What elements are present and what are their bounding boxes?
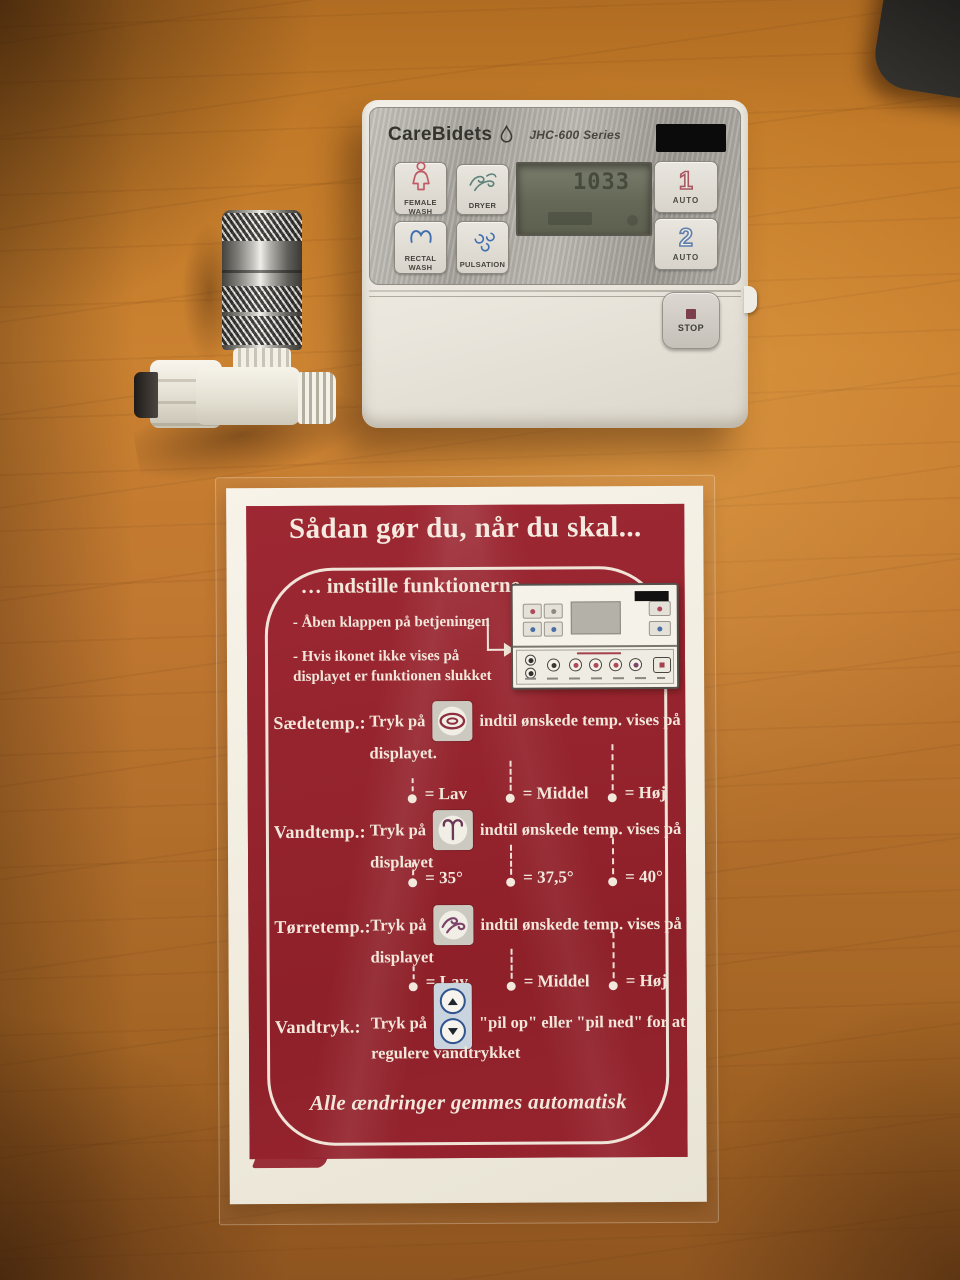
ir-window: [656, 124, 726, 152]
tee-end-cap: [134, 372, 158, 418]
card-paper: Sådan gør du, når du skal... … indstille…: [226, 486, 707, 1204]
mini-button: [544, 603, 563, 618]
mini-display: [571, 601, 621, 634]
row-label: Vandtryk.:: [275, 1017, 361, 1038]
levels-water-temp: = 35° = 37,5° = 40°: [274, 828, 680, 888]
rectal-wash-button[interactable]: RECTAL WASH: [394, 221, 447, 274]
arrow-line-vertical: [487, 618, 489, 651]
knurled-band: [222, 213, 302, 241]
card-subtitle: … indstille funktionerne: [301, 573, 521, 599]
arrow-up-icon: [440, 988, 466, 1014]
remote-side-tab: [744, 286, 757, 313]
coupling-groove: [222, 270, 302, 273]
seat-temperature-icon: [432, 701, 472, 741]
mini-round-button: [609, 658, 622, 671]
button-label: FEMALE WASH: [395, 198, 446, 216]
arrow-down-icon: [440, 1018, 466, 1044]
tee-threaded-outlet: [298, 372, 336, 424]
water-drop-icon: [498, 124, 515, 146]
remote-face-plate: CareBidets JHC-600 Series FEMALE WASH: [369, 107, 741, 285]
lcd-ghost-dot: [627, 215, 638, 226]
mini-button: [649, 621, 671, 636]
button-label: RECTAL WASH: [395, 254, 446, 272]
metal-quick-connect-coupling: [222, 210, 302, 350]
mini-round-button: [589, 658, 602, 671]
row-text-line2: regulere vandtrykket: [371, 1042, 681, 1064]
mini-button: [544, 621, 563, 636]
bullet-icon-hidden: - Hvis ikonet ikke vises på displayet er…: [293, 646, 513, 688]
tee-body: [196, 367, 300, 425]
mini-flap-hinge: [513, 645, 677, 648]
mini-stop-button: [653, 657, 671, 673]
mini-button: [523, 622, 542, 637]
female-wash-icon: [408, 161, 434, 196]
button-label: DRYER: [469, 201, 496, 210]
mini-button: [649, 601, 671, 616]
mini-red-caption: [577, 652, 621, 654]
stop-square-icon: [686, 309, 696, 319]
knurled-band: [222, 316, 302, 345]
row-text-pre: Tryk på: [369, 711, 425, 731]
bidet-remote-control: CareBidets JHC-600 Series FEMALE WASH: [362, 100, 748, 428]
female-wash-button[interactable]: FEMALE WASH: [394, 162, 447, 215]
levels-seat-temp: = Lav = Middel = Høj: [273, 744, 679, 804]
dryer-button[interactable]: DRYER: [456, 164, 509, 215]
digit-1: 1: [679, 169, 693, 194]
dryer-wind-icon: [468, 170, 498, 199]
mini-button-labels: [525, 677, 665, 680]
pulsation-button[interactable]: PULSATION: [456, 221, 509, 274]
auto-label: AUTO: [673, 253, 700, 262]
card-red-panel: Sådan gør du, når du skal... … indstille…: [246, 504, 687, 1159]
auto-2-button[interactable]: 2 AUTO: [654, 218, 718, 270]
auto-1-button[interactable]: 1 AUTO: [654, 161, 718, 213]
row-label: Sædetemp.:: [273, 713, 366, 734]
lcd-time-value: 1033: [573, 170, 630, 195]
card-footer: Alle ændringer gemmes automatisk: [249, 1089, 687, 1116]
button-label: PULSATION: [460, 260, 505, 269]
knurled-band: [222, 286, 302, 312]
instruction-card: Sådan gør du, når du skal... … indstille…: [215, 475, 719, 1226]
level-label: = Høj: [626, 972, 667, 990]
rectal-wash-icon: [407, 223, 435, 252]
row-text-post: "pil op" eller "pil ned" for at: [479, 1012, 686, 1033]
mini-round-button: [629, 658, 642, 671]
brand-logo: CareBidets: [388, 124, 492, 146]
water-pressure-arrows-icon: [434, 983, 472, 1049]
level-label: = Middel: [523, 784, 589, 802]
auto-label: AUTO: [673, 196, 700, 205]
lcd-ghost-segments: [548, 212, 592, 225]
card-title: Sådan gør du, når du skal...: [246, 511, 684, 546]
row-text-pre: Tryk på: [371, 1013, 427, 1033]
row-water-pressure: Vandtryk.: Tryk på "pil op" eller "pil n…: [275, 1004, 681, 1064]
level-label: = 37,5°: [523, 868, 574, 886]
paint-brush-mark: [252, 1158, 328, 1168]
card-remote-illustration: [511, 583, 680, 690]
level-label: = Middel: [524, 972, 590, 990]
bullet-open-flap: - Åben klappen på betjeningen: [293, 612, 490, 633]
model-label: JHC-600 Series: [529, 128, 621, 142]
mini-ir-window: [635, 591, 669, 601]
lcd-display: 1033: [516, 162, 652, 236]
levels-dryer-temp: = Lav = Middel = Høj: [274, 932, 680, 992]
mini-round-button: [569, 658, 582, 671]
mini-button: [523, 604, 542, 619]
stop-button[interactable]: STOP: [662, 292, 720, 349]
mini-round-button: [547, 659, 560, 672]
level-label: = 35°: [425, 869, 463, 887]
pulsation-swirls-icon: [469, 227, 497, 258]
stop-label: STOP: [678, 323, 704, 333]
level-label: = Høj: [625, 784, 666, 802]
digit-2: 2: [679, 226, 693, 251]
mini-open-flap: [516, 649, 674, 685]
level-label: = 40°: [625, 868, 663, 886]
brand-row: CareBidets JHC-600 Series: [388, 124, 621, 146]
mini-arrow-up-button: [525, 655, 536, 666]
photo-scene: CareBidets JHC-600 Series FEMALE WASH: [0, 0, 960, 1280]
row-text-post: indtil ønskede temp. vises på: [479, 710, 680, 731]
level-label: = Lav: [425, 785, 467, 803]
